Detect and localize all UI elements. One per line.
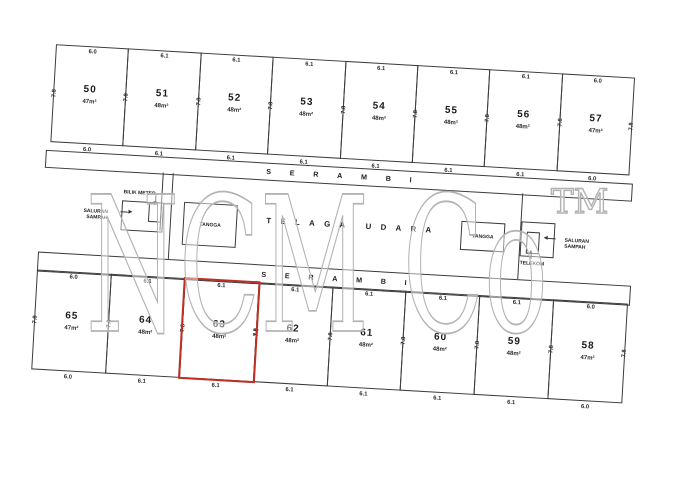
lot-bottom-dim: 6.1 — [285, 386, 293, 393]
lot-65: 6.0 7.8 65 47m² 6.0 — [31, 270, 112, 374]
lot-58: 6.0 7.8 7.8 58 47m² 6.0 — [548, 299, 629, 403]
lot-area: 48m² — [138, 328, 152, 335]
stairs-right-box: TANGGA — [460, 221, 506, 252]
lot-61: 6.1 7.8 61 48m² 6.1 — [326, 287, 407, 391]
stairs-left-label: TANGGA — [199, 221, 221, 228]
lot-number: 54 — [372, 100, 386, 112]
lot-number: 61 — [360, 327, 374, 339]
lot-51: 6.1 7.8 51 48m² 6.1 — [123, 48, 202, 150]
lot-number: 64 — [139, 314, 153, 326]
lot-center: 50 47m² — [51, 45, 128, 145]
lot-bottom-dim: 6.1 — [433, 395, 441, 402]
stairs-right-label: TANGGA — [472, 233, 494, 240]
lot-area: 47m² — [82, 98, 96, 105]
lot-center: 52 48m² — [196, 54, 273, 154]
stairs-left-box: TANGGA — [182, 202, 238, 248]
saluran-sampah-left-label: SALURAN SAMPAH — [82, 208, 108, 221]
saluran-sampah-left-arrow-icon — [128, 209, 132, 213]
lot-bottom-dim: 6.1 — [212, 382, 220, 389]
lot-number: 53 — [300, 96, 314, 108]
lot-center: 63 48m² — [180, 279, 258, 381]
lot-52: 6.1 7.8 52 48m² 6.1 — [195, 53, 274, 155]
lot-area: 48m² — [359, 341, 373, 348]
lot-number: 60 — [434, 331, 448, 343]
lot-64: 6.1 7.8 64 48m² 6.1 — [105, 274, 186, 378]
lot-54: 6.1 7.8 54 48m² 6.1 — [339, 61, 418, 163]
lot-area: 48m² — [227, 106, 241, 113]
lot-center: 55 48m² — [413, 66, 490, 166]
lot-center: 59 48m² — [475, 296, 553, 398]
lot-center: 62 48m² — [254, 283, 332, 385]
telekom-arrow-icon — [529, 250, 533, 254]
lot-53: 6.1 7.8 53 48m² 6.1 — [267, 57, 346, 159]
wall-line-left-b — [168, 173, 174, 259]
lot-number: 63 — [212, 318, 226, 330]
saluran-sampah-right-arrow-icon — [544, 235, 548, 239]
telekom-label: TELEKOM — [520, 260, 543, 267]
lot-number: 62 — [286, 322, 300, 334]
floor-plan: 6.0 7.8 50 47m² 6.0 6.1 7.8 51 48m² 6.1 … — [33, 44, 643, 404]
lot-50: 6.0 7.8 50 47m² 6.0 — [50, 44, 129, 146]
lot-number: 59 — [507, 335, 521, 347]
lot-number: 58 — [581, 339, 595, 351]
lot-area: 48m² — [299, 110, 313, 117]
air-well-label: TELAGA UDARA — [266, 217, 438, 235]
bilik-meter-label: BILIK METER — [121, 189, 157, 197]
lot-area: 48m² — [285, 337, 299, 344]
lot-63-highlighted: 6.1 7.8 7.8 63 48m² 6.1 — [179, 278, 260, 382]
saluran-sampah-right-label: SALURAN SAMPAH — [564, 238, 591, 251]
telekom-leader — [530, 254, 531, 259]
lot-center: 56 48m² — [485, 70, 562, 170]
lot-area: 48m² — [155, 102, 169, 109]
lot-number: 50 — [83, 83, 97, 95]
lot-number: 52 — [228, 92, 242, 104]
lot-bottom-dim: 6.0 — [64, 374, 72, 381]
lot-number: 57 — [589, 113, 603, 125]
lot-number: 56 — [517, 108, 531, 120]
lot-center: 51 48m² — [124, 49, 201, 149]
lot-area: 48m² — [371, 114, 385, 121]
lot-center: 61 48m² — [327, 288, 405, 390]
lot-number: 65 — [65, 310, 79, 322]
floor-plan-page: 6.0 7.8 50 47m² 6.0 6.1 7.8 51 48m² 6.1 … — [0, 0, 683, 479]
lot-number: 55 — [445, 104, 459, 116]
lot-57: 6.0 7.8 7.8 57 47m² 6.0 — [556, 73, 635, 175]
lot-center: 57 47m² — [557, 74, 634, 174]
lot-60: 6.1 7.8 60 48m² 6.1 — [400, 291, 481, 395]
lot-area: 47m² — [588, 127, 602, 134]
lot-bottom-dim: 6.1 — [138, 378, 146, 385]
lot-center: 64 48m² — [106, 275, 184, 377]
lot-area: 48m² — [444, 118, 458, 125]
lot-center: 58 47m² — [549, 300, 627, 402]
lot-center: 54 48m² — [340, 62, 417, 162]
lot-center: 53 48m² — [268, 58, 345, 158]
bilik-meter-arrow-icon — [153, 201, 157, 205]
lot-area: 48m² — [211, 332, 225, 339]
lot-area: 48m² — [506, 349, 520, 356]
lot-area: 47m² — [64, 324, 78, 331]
lot-bottom-dim: 6.0 — [580, 403, 588, 410]
lot-55: 6.1 7.8 55 48m² 6.1 — [412, 65, 491, 167]
lot-56: 6.1 7.8 56 48m² 6.1 — [484, 69, 563, 171]
corridor-top-label: SERAMBI — [247, 167, 430, 185]
lot-center: 60 48m² — [401, 292, 479, 394]
lot-area: 48m² — [516, 123, 530, 130]
lot-62: 6.1 7.8 62 48m² 6.1 — [252, 282, 333, 386]
lot-center: 65 47m² — [32, 271, 110, 373]
lot-area: 48m² — [433, 345, 447, 352]
lot-bottom-dim: 6.1 — [507, 399, 515, 406]
lot-bottom-dim: 6.1 — [359, 391, 367, 398]
lot-area: 47m² — [580, 354, 594, 361]
lot-59: 6.1 7.8 59 48m² 6.1 — [474, 295, 555, 399]
lot-number: 51 — [156, 88, 170, 100]
